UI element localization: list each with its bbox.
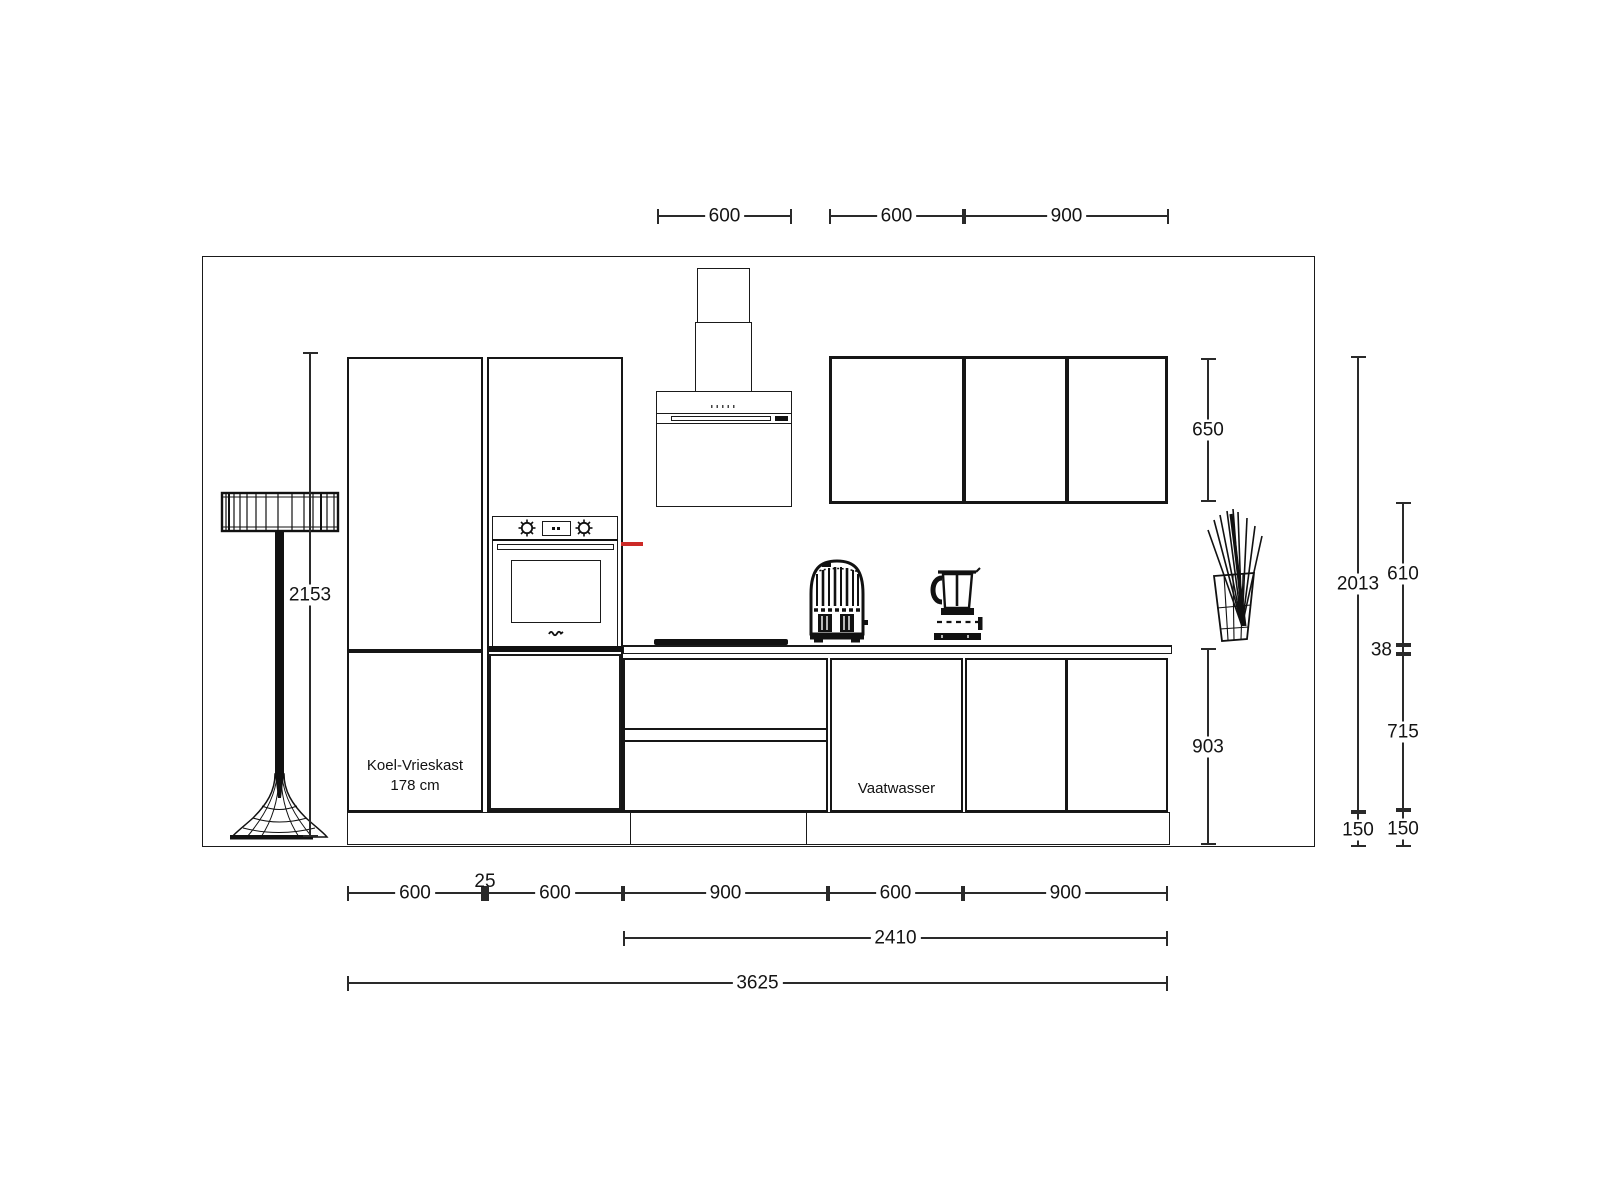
dim-bottom-sink-label: 900	[1046, 883, 1086, 904]
kitchen-elevation-drawing: 2153 Koel-Vrieskast 178 cm	[0, 0, 1600, 1200]
plinth-joint	[806, 812, 807, 845]
oven-window	[511, 560, 601, 623]
fridge-label-line2: 178 cm	[347, 776, 483, 796]
worktop	[623, 645, 1172, 654]
dim-upper-single-width-label: 600	[877, 206, 917, 227]
dim-plinth-left-label: 150	[1338, 819, 1378, 840]
dim-hood-width-label: 600	[705, 206, 745, 227]
install-height-marker	[621, 542, 643, 546]
hood-control-label	[775, 416, 788, 421]
cooktop-icon	[654, 639, 788, 645]
dim-bottom-oven-label: 600	[535, 883, 575, 904]
fridge-tall-cabinet	[347, 357, 483, 812]
oven-base-band	[489, 646, 621, 652]
dim-backsplash-label: 610	[1383, 563, 1423, 584]
dim-base-front-label: 715	[1383, 722, 1423, 743]
plinth	[347, 812, 1170, 845]
worktop-end-cap	[612, 647, 623, 652]
hood-brand-dots-icon	[711, 405, 735, 408]
dim-wall-section-label: 2013	[1333, 574, 1383, 595]
base-door-divider	[1065, 658, 1068, 812]
dim-upper-height-label: 650	[1188, 420, 1228, 441]
oven-knob-right-icon	[574, 518, 594, 538]
oven-handle	[497, 544, 614, 550]
dim-bottom-gap-label: 25	[470, 871, 499, 892]
dim-bottom-drawers-label: 900	[706, 883, 746, 904]
floor-lamp-icon	[215, 486, 340, 842]
coffee-maker-icon	[806, 556, 868, 643]
dim-lamp-height-label: 2153	[285, 584, 335, 605]
oven-display-dot	[552, 527, 555, 530]
dim-upper-double-width-label: 900	[1047, 206, 1087, 227]
dishwasher-label: Vaatwasser	[830, 779, 963, 799]
dim-run-right-label: 2410	[870, 928, 920, 949]
hood-glass-body	[656, 423, 792, 507]
plinth-joint	[630, 812, 631, 845]
upper-cabinet-divider	[962, 356, 966, 504]
dim-bottom-dishwasher-label: 600	[876, 883, 916, 904]
hood-chimney-lower	[695, 322, 752, 392]
hood-chimney-upper	[697, 268, 750, 323]
dim-run-total-label: 3625	[732, 973, 782, 994]
oven-panel-line	[492, 539, 618, 541]
dim-base-height-label: 903	[1188, 736, 1228, 757]
fridge-label: Koel-Vrieskast 178 cm	[347, 756, 483, 795]
vase-icon	[1200, 508, 1270, 646]
oven-display-dot	[557, 527, 560, 530]
hood-top-band	[656, 391, 792, 414]
fridge-freezer-divider	[348, 649, 482, 653]
base-drawer-unit	[623, 658, 828, 812]
oven-knob-left-icon	[517, 518, 537, 538]
upper-cabinet-divider	[1065, 356, 1069, 504]
dim-worktop-thickness-label: 38	[1367, 639, 1396, 660]
dim-plinth-right-label: 150	[1383, 818, 1423, 839]
fridge-label-line1: Koel-Vrieskast	[347, 756, 483, 776]
drawer-divider-line	[623, 740, 828, 742]
blender-icon	[928, 556, 988, 643]
oven-cabinet-lower-door	[489, 654, 621, 810]
upper-cabinets	[829, 356, 1168, 504]
dim-bottom-fridge-label: 600	[395, 883, 435, 904]
oven-brand-logo-icon	[548, 629, 564, 637]
drawer-divider-line	[623, 728, 828, 730]
hood-vent-bar	[671, 416, 771, 421]
